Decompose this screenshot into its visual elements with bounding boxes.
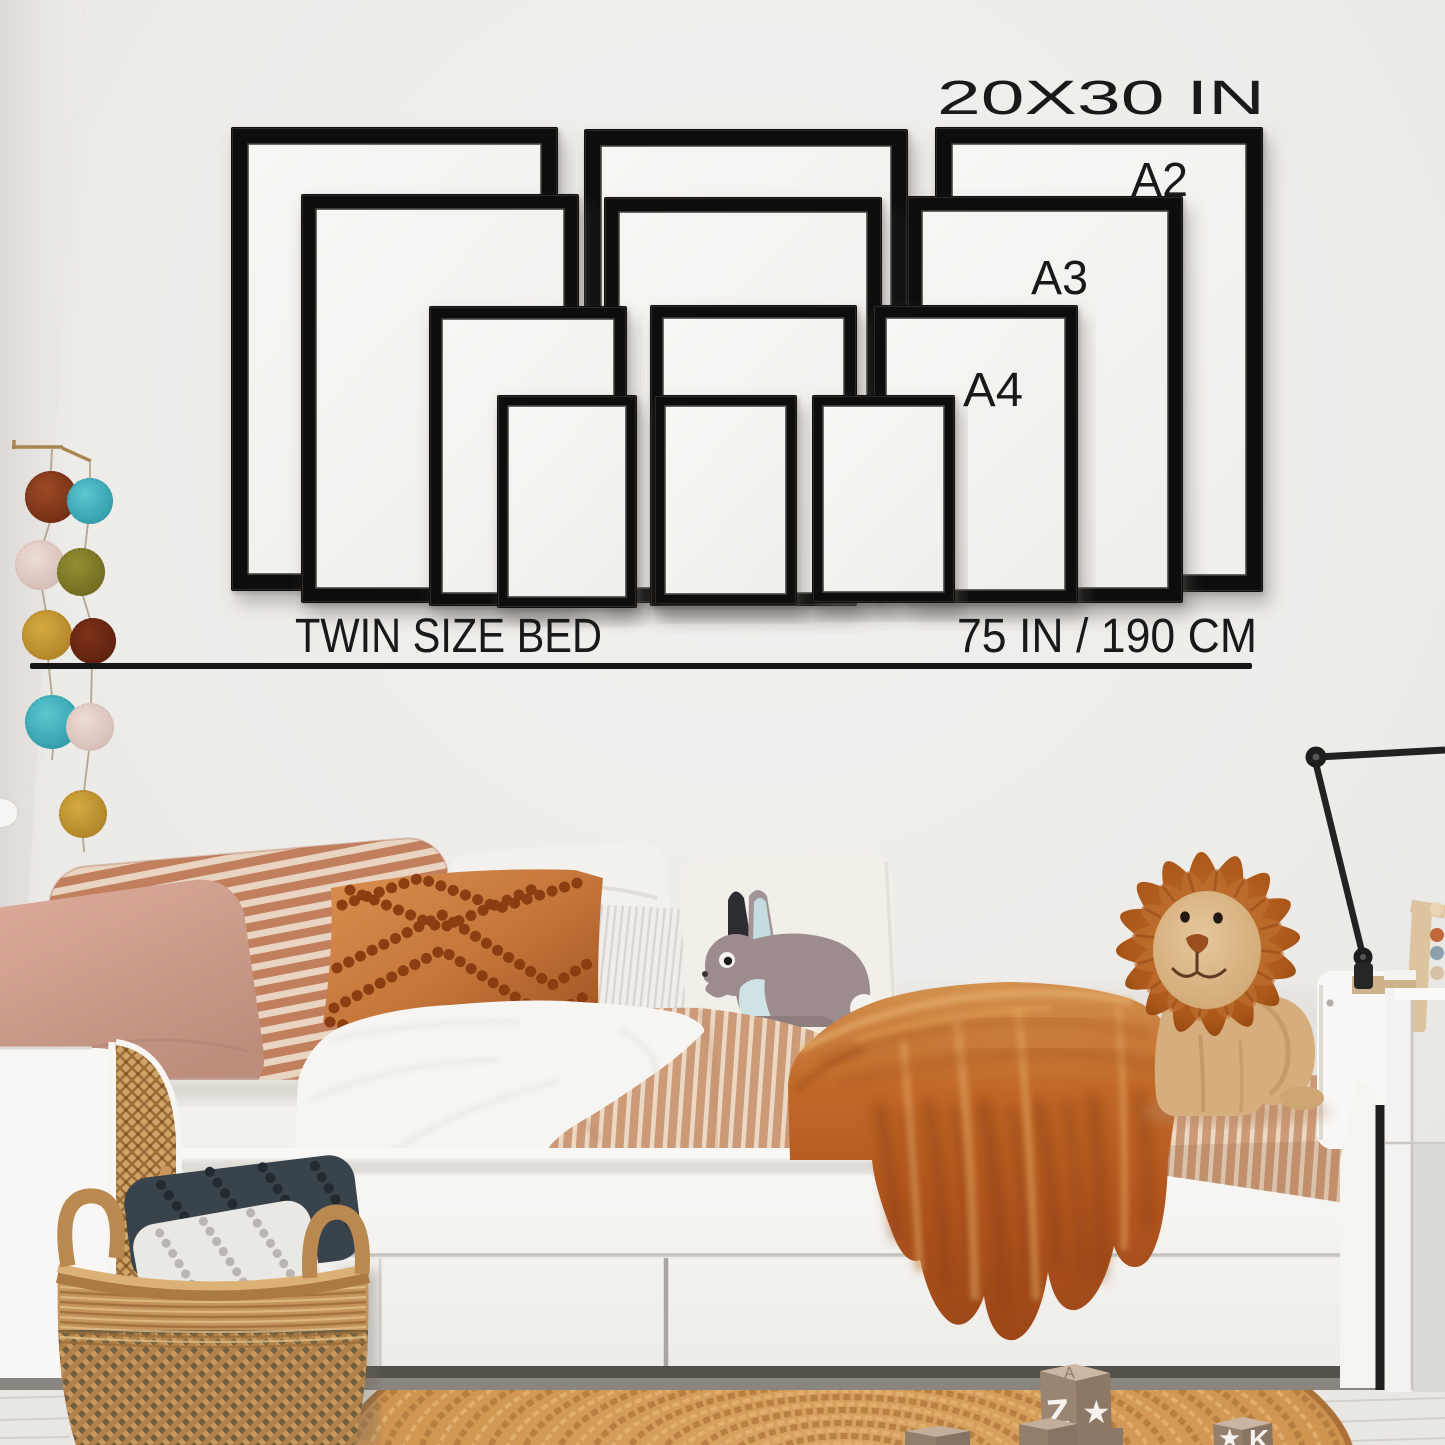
svg-text:A2: A2 <box>1131 154 1188 207</box>
svg-text:★: ★ <box>1218 1423 1241 1445</box>
svg-text:A3: A3 <box>1031 252 1088 305</box>
svg-text:K: K <box>1249 1424 1269 1445</box>
svg-text:75 IN / 190 CM: 75 IN / 190 CM <box>957 610 1257 663</box>
svg-text:A4: A4 <box>963 364 1023 417</box>
svg-text:★: ★ <box>1082 1394 1111 1430</box>
svg-text:TWIN SIZE BED: TWIN SIZE BED <box>295 610 602 663</box>
svg-text:20X30 IN: 20X30 IN <box>937 72 1265 125</box>
